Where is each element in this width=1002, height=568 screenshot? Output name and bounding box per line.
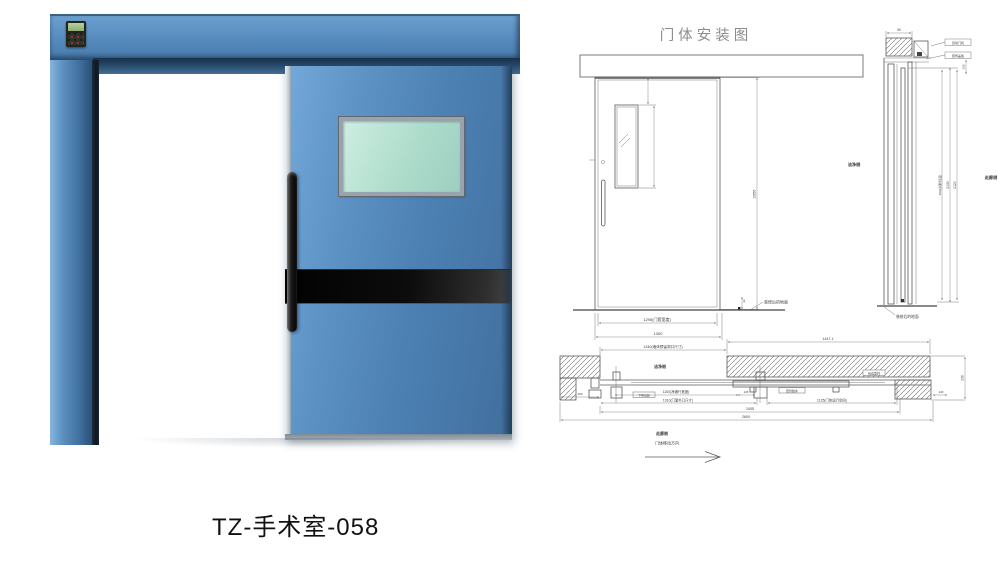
plan-dim-opening: 1340(墙体预留洞口尺寸) bbox=[643, 344, 682, 349]
elevation-dim-frame-width: 1295(门套宽度) bbox=[643, 316, 671, 322]
plan-dim-clear: 1100(净通行宽度) bbox=[663, 389, 690, 394]
plan-direction-label: 门体移动方向 bbox=[655, 440, 679, 446]
elevation-dim-height: 2056 bbox=[752, 189, 757, 199]
controller-buttons bbox=[68, 33, 84, 45]
plan-dim-frame: 1310(门套外口尺寸) bbox=[663, 397, 693, 402]
section-dim-clear: 2050(净通行高度) bbox=[938, 175, 942, 196]
plan-callout-seal: 密封胶条 bbox=[786, 388, 798, 393]
section-dim-leaf: 2120 bbox=[953, 181, 957, 189]
plan-dim-wall-left: 160 bbox=[577, 392, 582, 396]
plan-side-bottom-label: 走廊侧 bbox=[655, 430, 668, 436]
plan-side-top-label: 洁净侧 bbox=[654, 363, 666, 369]
installation-drawing: 门体安装图 2056 22 装修后的地面 1295(门套宽度) bbox=[545, 10, 1002, 470]
section-dim-side-gap: 165 bbox=[962, 64, 966, 69]
controller-screen bbox=[68, 23, 84, 31]
plan-dim-wall-right: 230 bbox=[961, 375, 965, 381]
plan-dim-pocket: 1447.1 bbox=[823, 337, 834, 341]
door-product-photo bbox=[35, 8, 535, 458]
plan-view: 下导向轮 密封胶条 包边型材 1340(墙体预留洞口尺寸) 1447.1 洁净侧… bbox=[560, 337, 965, 463]
left-door-jamb bbox=[50, 60, 92, 445]
model-caption: TZ-手术室-058 bbox=[212, 507, 379, 542]
section-side-left-label: 洁净侧 bbox=[848, 161, 861, 168]
plan-dim-end: 140 bbox=[939, 390, 944, 394]
plan-dim-total-inner: 2405 bbox=[746, 407, 754, 411]
section-callout-mid: 装饰盖板 bbox=[952, 53, 964, 58]
section-view: 50 自动门机 装饰盖板 2050(净通行高度) 2130 2120 165 洁… bbox=[848, 28, 998, 319]
elevation-dim-total-width: 1300 bbox=[654, 331, 664, 336]
section-dim-top: 50 bbox=[897, 28, 901, 32]
door-header-box bbox=[50, 14, 520, 60]
section-callout-top: 自动门机 bbox=[952, 40, 964, 45]
left-jamb-inner-edge bbox=[92, 60, 99, 445]
elevation-dim-floor-gap: 22 bbox=[742, 299, 746, 303]
plan-dim-gap: 125 bbox=[744, 390, 749, 394]
plan-dim-total-outer: 2600 bbox=[742, 415, 750, 419]
section-dim-track: 2130 bbox=[946, 181, 950, 189]
section-floor-label: 装修后的地面 bbox=[896, 314, 919, 319]
drawing-title: 门体安装图 bbox=[660, 27, 753, 44]
section-side-right-label: 走廊侧 bbox=[985, 174, 998, 181]
elevation-floor-label: 装修后的地面 bbox=[764, 299, 788, 305]
direction-arrow-icon bbox=[645, 452, 720, 463]
plan-callout-edge: 包边型材 bbox=[868, 370, 880, 375]
leaf-trailing-edge bbox=[501, 66, 512, 440]
sliding-door-leaf bbox=[285, 66, 512, 440]
door-controller-keypad bbox=[66, 21, 86, 47]
floor-shadow bbox=[80, 438, 525, 452]
plan-dim-travel: 1125(门体运行空间) bbox=[817, 397, 847, 402]
elevation-view: 2056 22 装修后的地面 1295(门套宽度) 1300 bbox=[573, 55, 863, 340]
kick-protection-band bbox=[285, 269, 512, 304]
vision-window bbox=[339, 117, 464, 196]
door-pull-handle bbox=[287, 172, 297, 332]
